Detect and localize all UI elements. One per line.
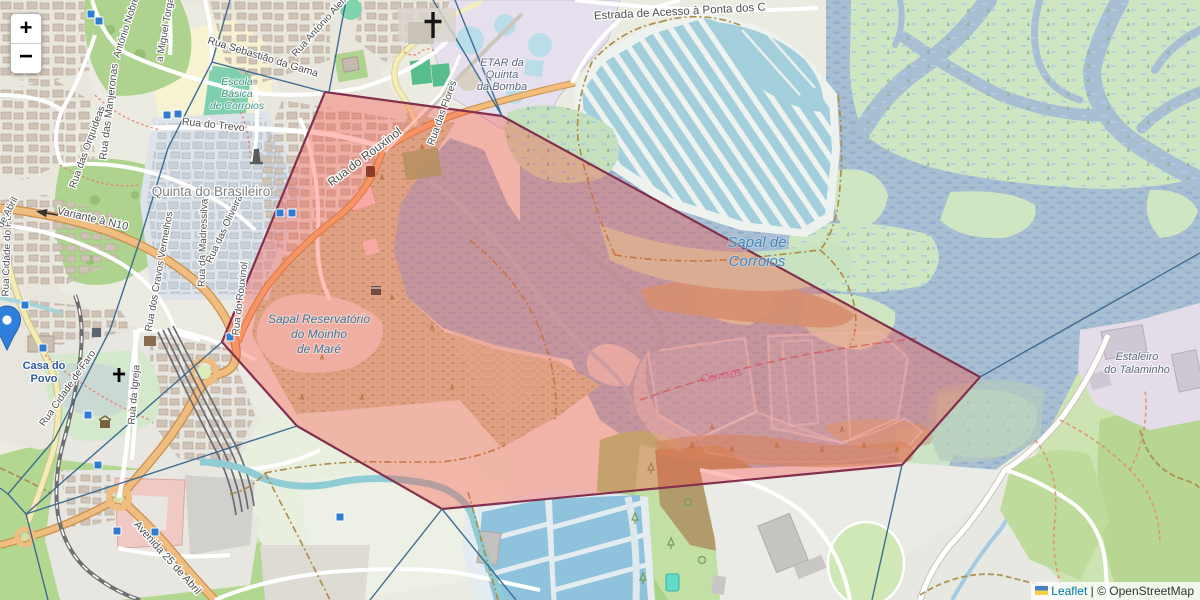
- svg-text:Quinta do Brasileiro: Quinta do Brasileiro: [152, 184, 271, 199]
- svg-text:Sapal de: Sapal de: [727, 234, 786, 251]
- svg-text:ETAR da: ETAR da: [480, 57, 524, 69]
- svg-text:Casa do: Casa do: [23, 360, 66, 372]
- svg-text:Estaleiro: Estaleiro: [1116, 351, 1159, 363]
- svg-text:da Bomba: da Bomba: [477, 81, 527, 93]
- svg-text:do Moinho: do Moinho: [291, 327, 347, 341]
- svg-text:Quinta: Quinta: [486, 69, 518, 81]
- svg-text:Básica: Básica: [221, 88, 253, 100]
- svg-text:de Corroios: de Corroios: [210, 100, 265, 112]
- svg-text:Sapal Reservatório: Sapal Reservatório: [268, 312, 370, 326]
- svg-text:do Talaminho: do Talaminho: [1104, 364, 1170, 376]
- svg-text:de Maré: de Maré: [297, 342, 341, 356]
- svg-text:Povo: Povo: [31, 373, 58, 385]
- svg-text:Corroios: Corroios: [729, 253, 786, 270]
- svg-text:Escola: Escola: [221, 76, 253, 88]
